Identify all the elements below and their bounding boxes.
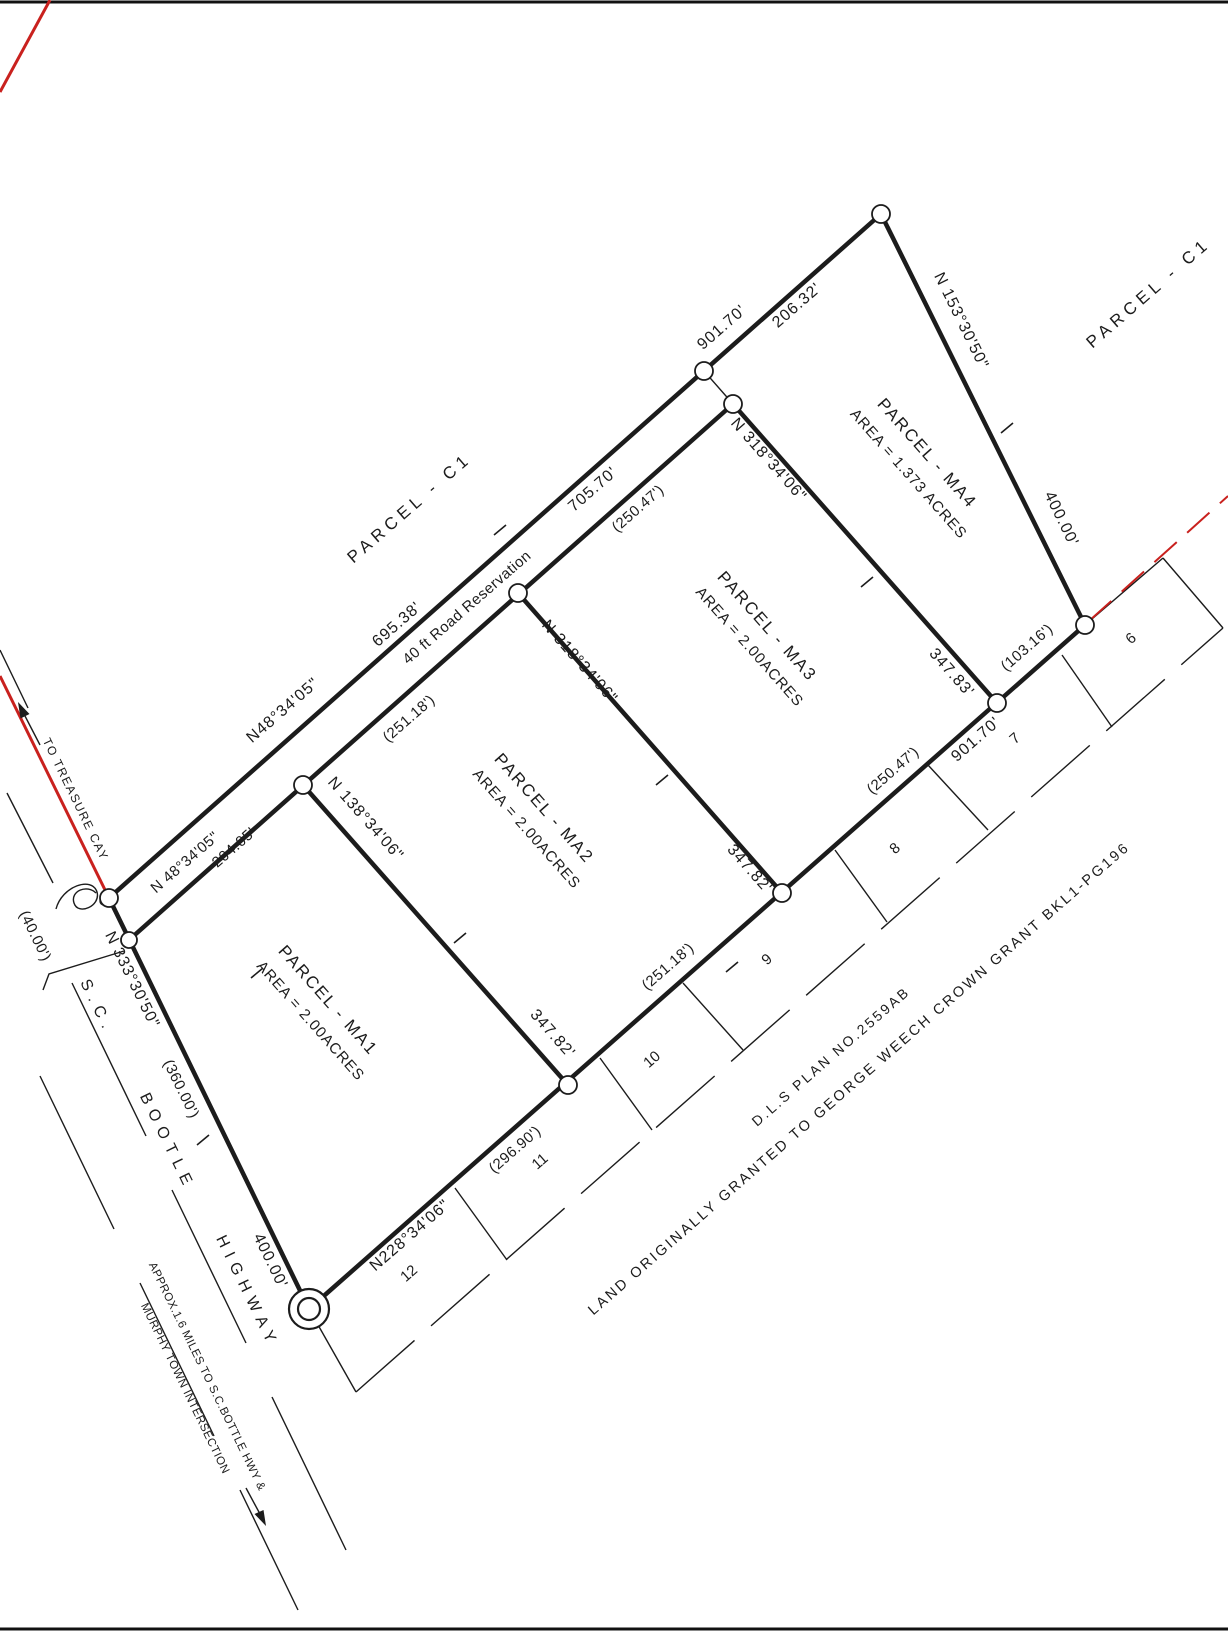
bearing-138-34-06: N 138°34'06" <box>324 774 407 864</box>
highway-dash <box>240 1490 298 1610</box>
bearing-48-34-05-upper: N48°34'05" <box>243 675 322 747</box>
boundary-southeast <box>309 625 1085 1309</box>
highway-dash <box>7 793 53 883</box>
lot-tick <box>928 765 988 830</box>
survey-plan-svg: PARCEL - C1PARCEL - C1PARCEL - MA4AREA =… <box>0 0 1228 1645</box>
lot-number-11: 11 <box>529 1150 552 1173</box>
tick-mark <box>726 962 738 972</box>
corner-marker <box>509 584 527 602</box>
dim-347-82-b: 347.82' <box>526 1006 578 1061</box>
corner-marker <box>724 395 742 413</box>
lot-tick <box>1163 558 1223 628</box>
plan-labels: PARCEL - C1PARCEL - C1PARCEL - MA4AREA =… <box>15 234 1214 1493</box>
red-corner-line <box>0 0 50 92</box>
highway-dash <box>40 1076 114 1229</box>
highway-dash <box>72 983 146 1136</box>
lot-tick <box>683 983 743 1050</box>
highway-dash <box>0 650 28 708</box>
dim-204-05: 204.05' <box>209 824 260 871</box>
lot-tick <box>455 1188 507 1260</box>
dim-40-00: (40.00') <box>15 908 54 964</box>
lot-tick <box>600 1058 652 1130</box>
lot-number-6: 6 <box>1122 629 1139 647</box>
highway-label-sc: S.C. <box>76 977 117 1038</box>
tick-mark <box>494 525 506 535</box>
lot-number-12: 12 <box>397 1262 421 1286</box>
treasure-cay-label: TO TREASURE CAY <box>40 736 112 863</box>
survey-plan-page: PARCEL - C1PARCEL - C1PARCEL - MA4AREA =… <box>0 0 1228 1645</box>
lot-number-9: 9 <box>758 950 775 968</box>
lot-tick <box>835 850 887 922</box>
boundary-northeast <box>881 214 1085 625</box>
dim-251-18-south: (251.18') <box>639 939 698 993</box>
tick-mark <box>454 933 466 943</box>
lot-number-7: 7 <box>1006 729 1023 747</box>
rear-lot-line <box>356 628 1223 1392</box>
dim-347-82-a: 347.82' <box>723 841 775 896</box>
dim-400-00-right: 400.00' <box>1040 489 1081 549</box>
tick-mark <box>656 775 668 785</box>
red-dashed-continuation <box>1089 496 1228 621</box>
dim-901-70-top: 901.70' <box>694 302 750 354</box>
tick-mark <box>1001 423 1013 433</box>
corner-marker <box>773 884 791 902</box>
corner-marker <box>1076 616 1094 634</box>
tick-mark <box>861 577 873 587</box>
corner-marker <box>294 776 312 794</box>
parcel-c1-left-label: PARCEL - C1 <box>344 449 476 567</box>
treasure-cay-road-centerline <box>0 676 109 898</box>
corner-marker <box>988 694 1006 712</box>
dim-250-47-south: (250.47') <box>864 743 923 797</box>
highway-dash <box>272 1397 346 1550</box>
bearing-318-34-06-b: N 318°34'06" <box>538 617 621 707</box>
line-break-squiggle <box>56 884 97 909</box>
division-ma3-ma4 <box>733 404 997 703</box>
bearing-153-30-50: N 153°30'50" <box>930 270 991 372</box>
corner-monuments <box>100 205 1094 1329</box>
dim-251-18-top: (251.18') <box>380 691 439 745</box>
dim-360-00: (360.00') <box>160 1057 203 1121</box>
bearing-318-34-06-a: N 318°34'06" <box>727 415 810 505</box>
crown-grant-note: LAND ORIGINALLY GRANTED TO GEORGE WEECH … <box>585 839 1133 1318</box>
lot-tick <box>1062 655 1112 727</box>
lot-number-10: 10 <box>640 1048 664 1072</box>
corner-marker <box>100 889 118 907</box>
tick-mark <box>197 1135 209 1145</box>
corner-marker <box>695 362 713 380</box>
lot-number-8: 8 <box>886 839 903 857</box>
corner-marker-double-inner <box>298 1298 320 1320</box>
parcel-c1-right-label: PARCEL - C1 <box>1083 234 1215 352</box>
corner-marker <box>872 205 890 223</box>
corner-marker <box>559 1076 577 1094</box>
dim-103-16: (103.16') <box>998 620 1057 674</box>
